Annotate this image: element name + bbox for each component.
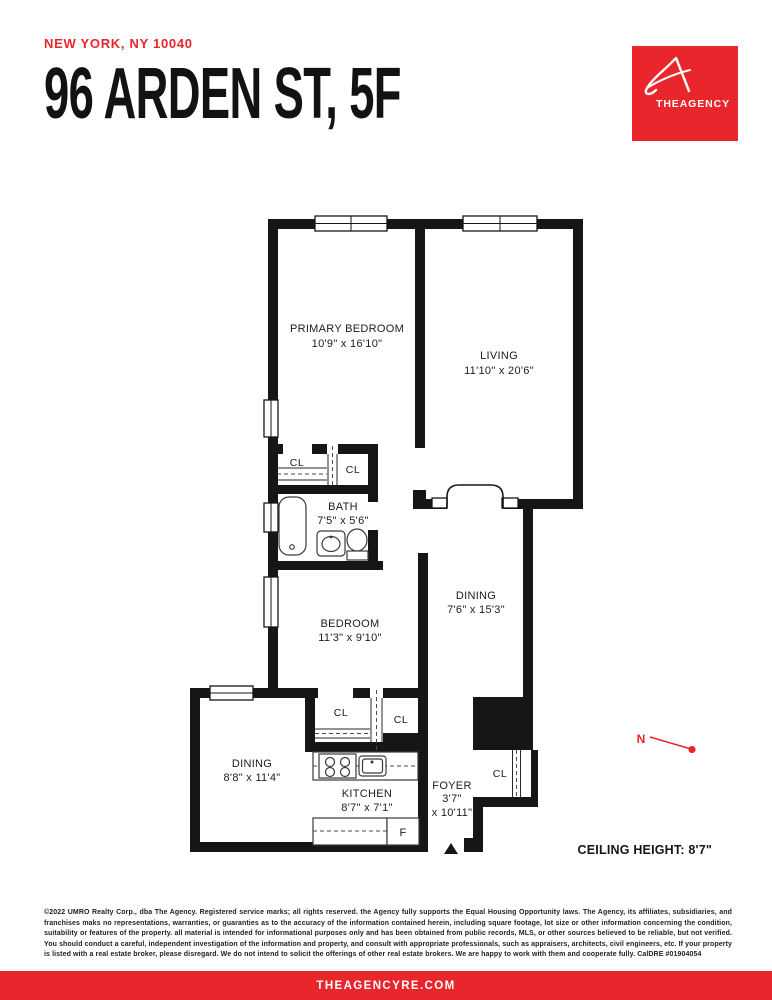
room-dims-dining-lower: 8'8" x 11'4" [224,772,281,784]
room-dims-primary-bedroom: 10'9" x 16'10" [312,338,383,350]
room-dims-foyer-1: 3'7" [442,793,461,805]
north-line [650,737,691,749]
closet-label: CL [346,464,360,476]
room-label-primary-bedroom: PRIMARY BEDROOM [290,323,404,335]
north-dot [688,746,695,753]
bath-sink-icon [317,531,345,556]
room-label-living: LIVING [480,350,518,362]
shaft-block [473,697,533,750]
lower-counter-icon [313,818,387,845]
ceiling-height-note: CEILING HEIGHT: 8'7" [578,843,712,857]
window [264,577,278,627]
door-symbols [277,446,521,854]
room-dims-bedroom: 11'3" x 9'10" [318,632,381,644]
bathtub-icon [279,497,306,555]
room-label-foyer: FOYER [432,780,471,792]
fridge-label: F [399,827,406,839]
north-arrow: N [637,732,696,753]
room-dims-bath: 7'5" x 5'6" [317,515,368,527]
closet-label: CL [493,768,507,780]
room-label-dining-lower: DINING [232,758,272,770]
kitchen-sink-icon [359,756,386,776]
closet-label: CL [334,707,348,719]
toilet-icon [347,529,368,560]
room-label-kitchen: KITCHEN [342,788,392,800]
arched-opening-icon [447,485,503,508]
room-dims-living: 11'10" x 20'6" [464,365,534,377]
room-label-bath: BATH [328,501,358,513]
footer-website: THEAGENCYRE.COM [316,980,455,992]
stove-icon [319,754,356,778]
room-label-bedroom: BEDROOM [321,618,380,630]
flyer-page: NEW YORK, NY 10040 96 ARDEN ST, 5F THEAG… [0,0,772,1000]
window [315,216,387,231]
window [264,400,278,437]
window [264,503,278,532]
window [463,216,537,231]
legal-disclaimer: ©2022 UMRO Realty Corp., dba The Agency.… [44,908,732,961]
door-casing [502,498,518,508]
window [210,686,253,700]
closet-label: CL [394,714,408,726]
north-label: N [637,732,646,746]
room-dims-dining-upper: 7'6" x 15'3" [447,604,505,616]
door-casing [432,498,447,508]
floor-plan: PRIMARY BEDROOM 10'9" x 16'10" LIVING 11… [0,0,772,1000]
entry-arrow-icon [444,843,458,854]
room-dims-foyer-2: x 10'11" [432,807,473,819]
footer-bar: THEAGENCYRE.COM [0,971,772,1000]
room-label-dining-upper: DINING [456,590,496,602]
room-dims-kitchen: 8'7" x 7'1" [341,802,392,814]
closet-label: CL [290,457,304,469]
